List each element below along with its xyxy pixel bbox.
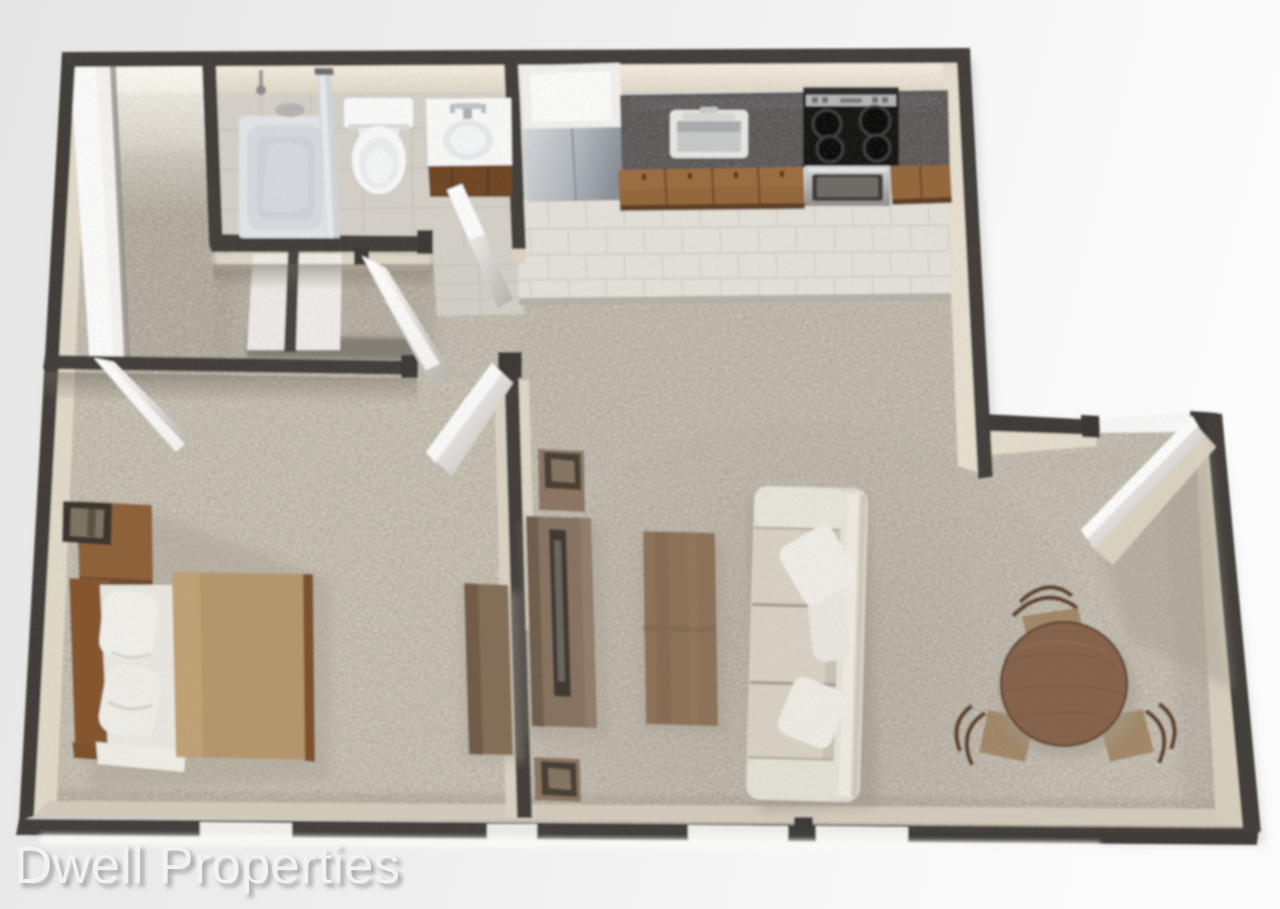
svg-text:Dwell Properties: Dwell Properties [14, 836, 400, 895]
